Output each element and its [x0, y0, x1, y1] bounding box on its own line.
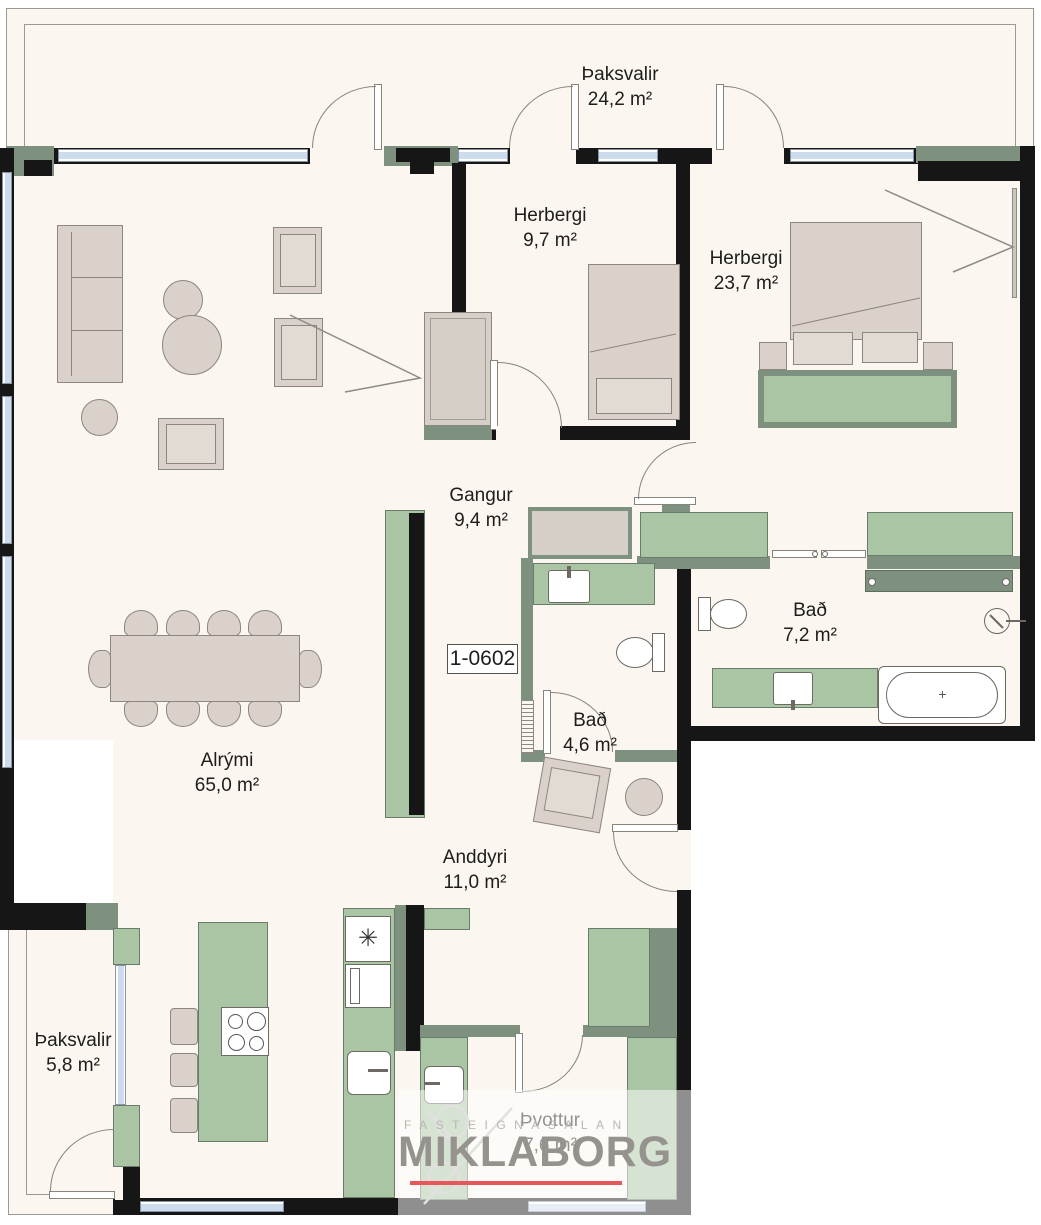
- entry-armchair-cushion: [544, 767, 601, 819]
- bed-pillow: [793, 332, 853, 365]
- room-label-hallway: Gangur 9,4 m²: [408, 483, 554, 533]
- toilet-tank: [652, 633, 665, 672]
- room-area: 24,2 m²: [547, 87, 693, 112]
- sofa-seat-line: [72, 330, 122, 331]
- room-name: Þaksvalir: [0, 1028, 146, 1053]
- room-area: 4,6 m²: [517, 733, 663, 758]
- room-label-bath-small: Bað 4,6 m²: [517, 708, 663, 758]
- armchair-cushion: [281, 325, 317, 380]
- dining-chair: [88, 650, 112, 688]
- towel-rail: [865, 570, 1013, 592]
- coffee-table-small: [163, 280, 203, 320]
- wall-mid-vertical: [677, 557, 691, 830]
- room-name: Þaksvalir: [547, 62, 693, 87]
- window: [598, 149, 658, 162]
- logo-red-bar: [410, 1181, 622, 1185]
- dining-chair: [124, 610, 158, 637]
- cooktop-burner: [228, 1014, 243, 1029]
- nightstand: [759, 342, 787, 370]
- wall-laundry-top-a: [420, 1025, 520, 1037]
- wall-kitchen-back: [395, 905, 406, 1051]
- terrace-east-cabinet: [113, 928, 140, 965]
- room-area: 7,2 m²: [737, 623, 883, 648]
- room-label-living: Alrými 65,0 m²: [154, 748, 300, 798]
- wall-stub-top-left: [24, 160, 52, 176]
- cooktop-burner: [247, 1012, 266, 1031]
- room-label-terrace-top: Þaksvalir 24,2 m²: [547, 62, 693, 112]
- window: [458, 149, 508, 162]
- kitchen-upper-cabinet: [424, 908, 470, 930]
- wardrobe-cabinet: [867, 512, 1013, 556]
- sofa-back-line: [71, 232, 72, 376]
- toilet-bowl: [616, 637, 654, 668]
- door-leaf: [716, 84, 724, 150]
- terrace-door-gap: [115, 1167, 123, 1200]
- rail-knob: [868, 578, 876, 586]
- bar-stool: [170, 1053, 198, 1087]
- window: [140, 1201, 284, 1212]
- wall-corner-top-right: [918, 161, 1035, 181]
- entry-door-gap: [677, 830, 691, 890]
- sofa: [57, 225, 123, 383]
- freezer: ✳: [345, 916, 391, 962]
- room-area: 9,7 m²: [477, 228, 623, 253]
- wall-bottom-right-section: [690, 726, 1035, 741]
- bed-pillow: [862, 332, 918, 363]
- window: [2, 172, 12, 384]
- faucet: [368, 1069, 388, 1072]
- floor-plan: 1-0602 + ✳: [0, 0, 1041, 1225]
- unit-number-box: 1-0602: [447, 644, 518, 674]
- door-knob: [822, 551, 828, 557]
- room-label-bath-large: Bað 7,2 m²: [737, 598, 883, 648]
- door-leaf: [49, 1191, 115, 1199]
- wall-laundry-right-pier: [650, 928, 677, 1027]
- bed-bench: [758, 370, 957, 428]
- wall-bedroom1-bottom-b: [560, 426, 690, 440]
- wall-stub-top-mid: [410, 162, 434, 174]
- wall-right: [1020, 146, 1035, 740]
- window: [2, 556, 12, 768]
- side-table: [625, 778, 663, 816]
- armchair-cushion: [166, 424, 216, 464]
- pouf: [81, 399, 118, 436]
- logo-brand: MIKLABORG: [398, 1128, 630, 1177]
- shower-valve: [984, 608, 1010, 634]
- room-area: 23,7 m²: [673, 271, 819, 296]
- dining-chair: [166, 610, 200, 637]
- wall-under-closet: [424, 426, 492, 440]
- coffee-table-large: [162, 315, 222, 375]
- dining-table: [110, 635, 300, 702]
- tall-cabinet-core: [409, 513, 424, 815]
- door-gap: [496, 426, 560, 440]
- wall-pier-terrace: [86, 903, 118, 930]
- bar-stool: [170, 1098, 198, 1133]
- wardrobe-sliding-door: [1012, 188, 1017, 298]
- room-label-bedroom-large: Herbergi 23,7 m²: [673, 246, 819, 296]
- cooktop-burner: [228, 1034, 245, 1051]
- armchair-cushion: [280, 234, 316, 287]
- wardrobe-cabinet: [640, 512, 768, 558]
- bar-stool: [170, 1008, 198, 1045]
- rail-knob: [1002, 578, 1010, 586]
- wall-core-top-mid: [396, 148, 450, 162]
- room-name: Bað: [737, 598, 883, 623]
- room-name: Herbergi: [477, 203, 623, 228]
- dining-chair: [298, 650, 322, 688]
- dining-chair: [248, 610, 282, 637]
- oven-door-line: [350, 968, 360, 1004]
- closet-inner: [430, 318, 486, 420]
- double-door-leaf: [772, 550, 817, 558]
- room-name: Alrými: [154, 748, 300, 773]
- door-gap: [712, 148, 784, 164]
- entry-cabinet: [588, 928, 650, 1027]
- faucet: [424, 1082, 440, 1085]
- room-area: 65,0 m²: [154, 773, 300, 798]
- entry-door-leaf: [612, 824, 678, 832]
- door-leaf: [490, 360, 498, 430]
- kitchen-sink: [347, 1051, 391, 1095]
- wall-bedroom1-left: [452, 163, 466, 313]
- room-area: 5,8 m²: [0, 1053, 146, 1078]
- cooktop-burner: [249, 1036, 264, 1051]
- room-label-bedroom-small: Herbergi 9,7 m²: [477, 203, 623, 253]
- room-label-entrance: Anddyri 11,0 m²: [400, 845, 550, 895]
- door-knob: [812, 551, 818, 557]
- window: [2, 396, 12, 544]
- room-name: Bað: [517, 708, 663, 733]
- door-gap: [510, 148, 576, 164]
- sofa-seat-line: [72, 277, 122, 278]
- wall-terrace-east: [121, 1167, 140, 1200]
- room-label-terrace-small: Þaksvalir 5,8 m²: [0, 1028, 146, 1078]
- faucet: [791, 700, 795, 710]
- window: [58, 149, 308, 162]
- room-area: 9,4 m²: [408, 508, 554, 533]
- window: [790, 149, 914, 162]
- bathtub-drain: +: [936, 688, 949, 701]
- bed-pillow: [596, 378, 672, 414]
- dining-chair: [207, 610, 241, 637]
- room-name: Herbergi: [673, 246, 819, 271]
- door-leaf: [515, 1033, 523, 1093]
- room-name: Anddyri: [400, 845, 550, 870]
- room-name: Gangur: [408, 483, 554, 508]
- faucet: [567, 566, 571, 578]
- terrace-east-cabinet: [113, 1105, 140, 1167]
- door-gap: [310, 148, 384, 164]
- nightstand: [923, 342, 953, 370]
- room-area: 11,0 m²: [400, 870, 550, 895]
